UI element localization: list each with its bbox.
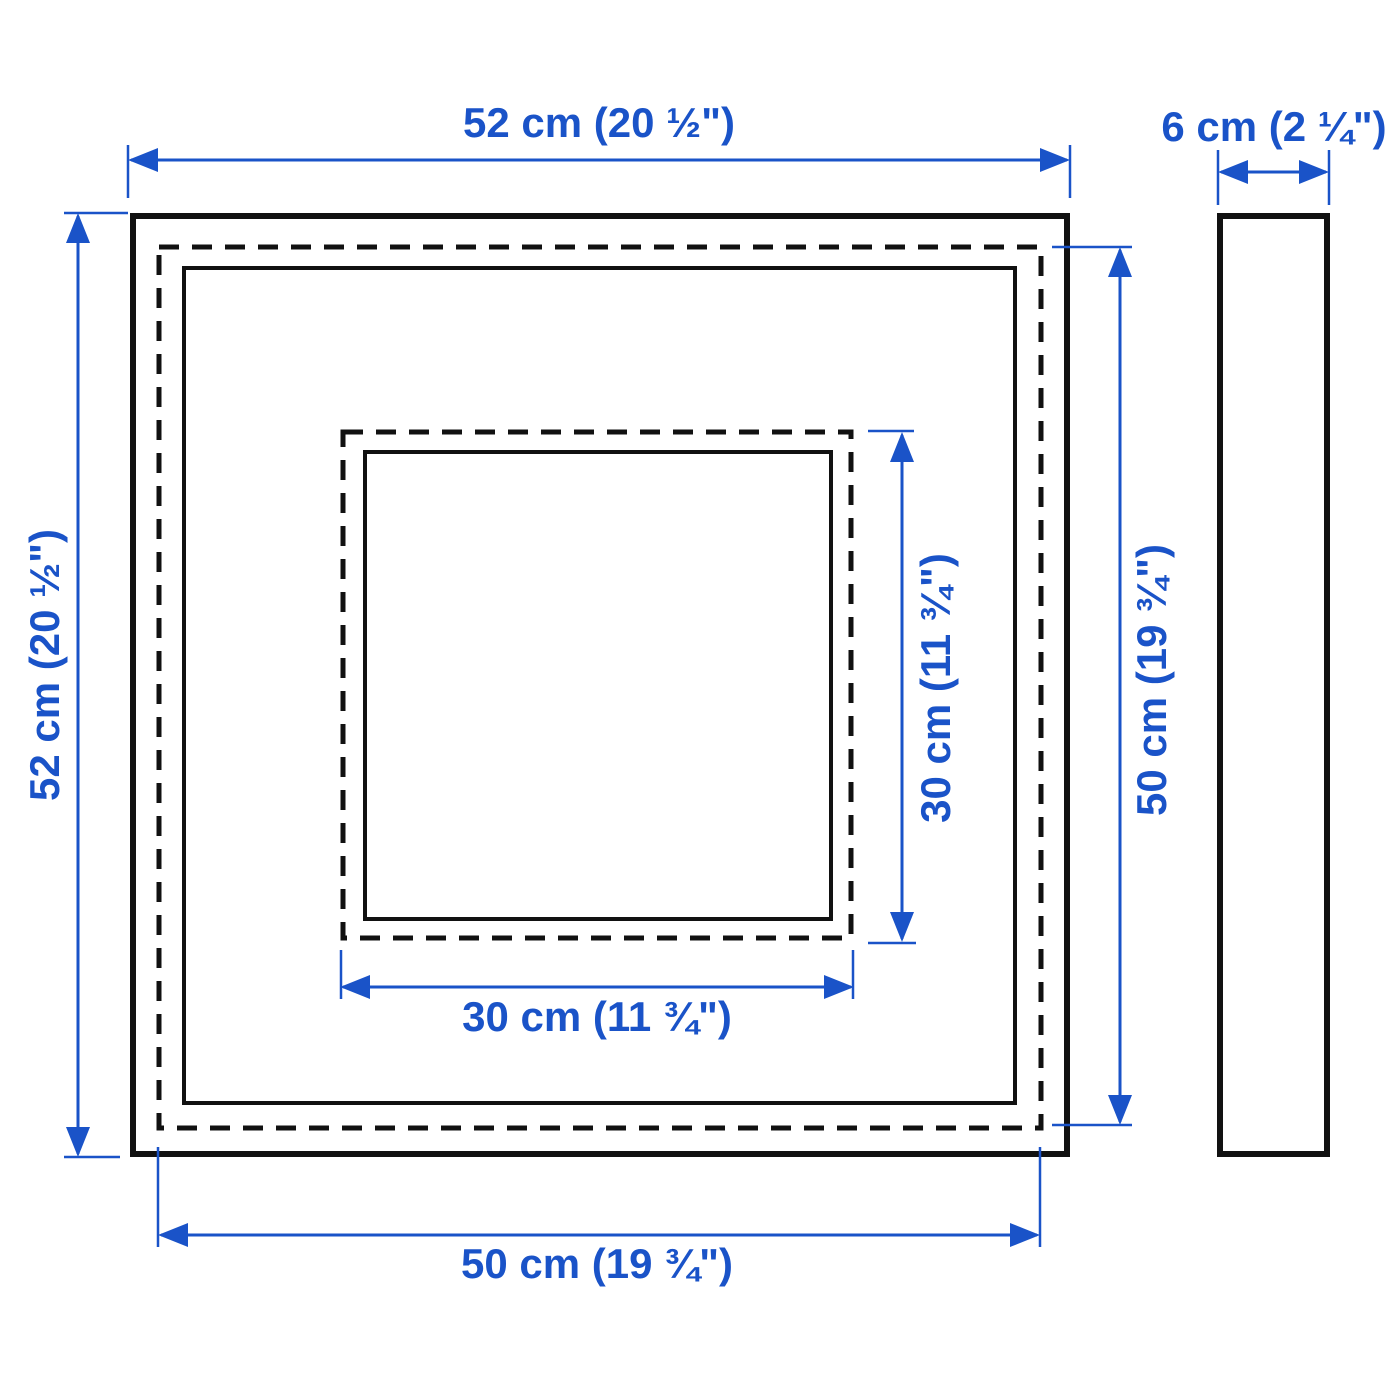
opening-back-edge-dashed (343, 432, 851, 938)
dim-depth (1218, 150, 1329, 205)
dim-outer-height (64, 213, 128, 1157)
dim-opening-height (868, 431, 916, 943)
depth-label: 6 cm (2 ¼") (1161, 106, 1386, 148)
frame-inner-face-edge (184, 268, 1015, 1103)
dim-outer-width (128, 145, 1070, 198)
dimension-drawing (0, 0, 1400, 1400)
dim-back-width (158, 1147, 1040, 1247)
product-dimension-diagram: 52 cm (20 ½") 6 cm (2 ¼") 52 cm (20 ½") … (0, 0, 1400, 1400)
back-width-label: 50 cm (19 ¾") (461, 1243, 733, 1285)
opening-height-label: 30 cm (11 ¾") (915, 553, 957, 823)
side-profile-edge (1220, 216, 1327, 1154)
back-height-label: 50 cm (19 ¾") (1131, 544, 1173, 816)
opening-front-edge (365, 452, 831, 919)
outer-width-label: 52 cm (20 ½") (463, 102, 735, 144)
opening-width-label: 30 cm (11 ¾") (462, 996, 732, 1038)
dim-opening-width (341, 950, 853, 999)
outer-height-label: 52 cm (20 ½") (24, 529, 66, 801)
frame-side-view (1220, 216, 1327, 1154)
